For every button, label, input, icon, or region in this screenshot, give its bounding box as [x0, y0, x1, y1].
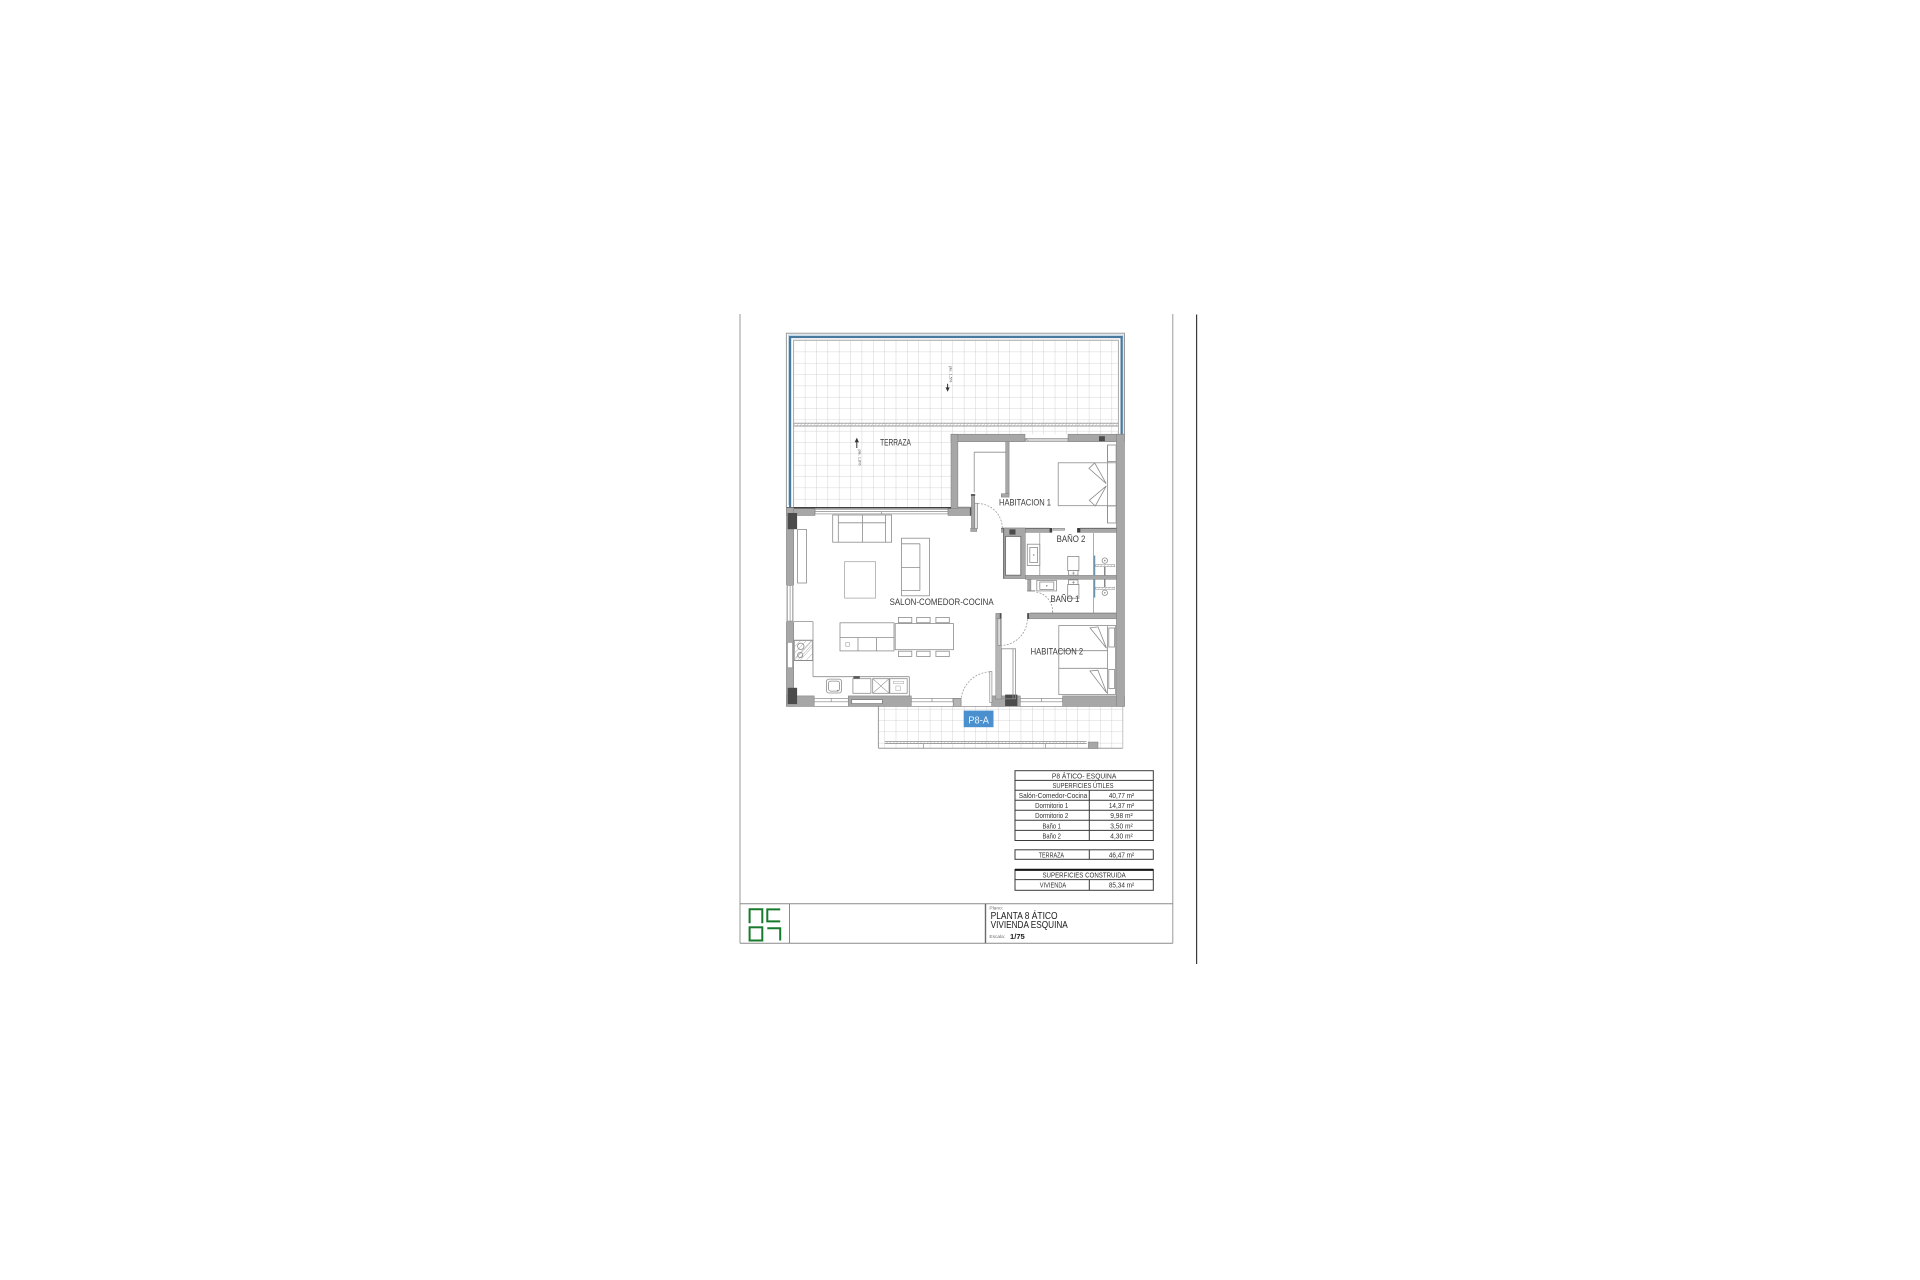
svg-text:VIVIENDA ESQUINA: VIVIENDA ESQUINA [991, 920, 1069, 931]
svg-text:Dormitorio 1: Dormitorio 1 [1035, 801, 1068, 810]
svg-text:HABITACION 1: HABITACION 1 [999, 498, 1051, 508]
svg-text:SUPERFICIES CONSTRUIDA: SUPERFICIES CONSTRUIDA [1042, 870, 1125, 879]
svg-text:BAÑO 2: BAÑO 2 [1057, 534, 1086, 544]
svg-text:BAÑO 1: BAÑO 1 [1050, 594, 1079, 604]
svg-text:TERRAZA: TERRAZA [1039, 850, 1064, 859]
svg-text:46,47 m²: 46,47 m² [1109, 850, 1135, 859]
svg-text:pte. 1,5%: pte. 1,5% [948, 366, 952, 383]
svg-text:pte. 1,8%: pte. 1,8% [857, 450, 861, 467]
svg-text:SALON-COMEDOR-COCINA: SALON-COMEDOR-COCINA [890, 597, 994, 607]
svg-text:TERRAZA: TERRAZA [880, 437, 911, 447]
svg-text:Salón-Comedor-Cocina: Salón-Comedor-Cocina [1019, 791, 1088, 800]
svg-text:4,30 m²: 4,30 m² [1110, 831, 1133, 840]
svg-text:Escala:: Escala: [989, 934, 1005, 940]
svg-text:Baño 2: Baño 2 [1042, 831, 1061, 840]
svg-text:Dormitorio 2: Dormitorio 2 [1035, 811, 1068, 820]
svg-text:9,98 m²: 9,98 m² [1110, 811, 1133, 820]
svg-text:3,50 m²: 3,50 m² [1110, 821, 1133, 830]
svg-text:P8 ÁTICO- ESQUINA: P8 ÁTICO- ESQUINA [1052, 771, 1117, 780]
svg-text:SUPERFICIES ÚTILES: SUPERFICIES ÚTILES [1052, 781, 1113, 790]
svg-text:VIVIENDA: VIVIENDA [1040, 881, 1067, 890]
svg-text:Baño 1: Baño 1 [1042, 821, 1061, 830]
svg-text:14,37 m²: 14,37 m² [1109, 801, 1135, 810]
svg-text:85,34 m²: 85,34 m² [1109, 881, 1135, 890]
svg-text:HABITACION 2: HABITACION 2 [1031, 647, 1084, 657]
svg-text:40,77 m²: 40,77 m² [1109, 791, 1135, 800]
svg-text:P8-A: P8-A [968, 715, 989, 727]
svg-text:1/75: 1/75 [1010, 932, 1026, 941]
